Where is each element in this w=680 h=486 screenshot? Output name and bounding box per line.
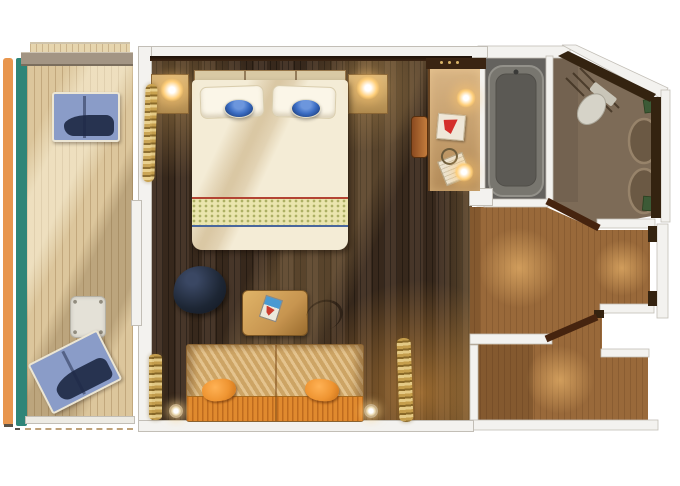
nightstand-lamp-left (160, 78, 184, 102)
tub-divider-wall (546, 56, 553, 204)
entry-outer-wall (657, 224, 668, 318)
red-logo-bag (436, 113, 466, 141)
sofa-center-seam (275, 345, 277, 421)
hallway-glow (526, 346, 594, 414)
bag-logo (442, 118, 457, 134)
bathroom-bottom-wall-right (597, 219, 655, 228)
bed-runner (192, 197, 348, 227)
bottle (456, 61, 459, 64)
curtain-bottom-right (397, 338, 414, 422)
vanity-lamp-bottom (454, 162, 474, 182)
bathroom-top-wall (478, 46, 570, 58)
bottle (440, 61, 443, 64)
entry-door-jamb-bottom (648, 291, 657, 306)
bathroom-bottom-wall-left (484, 199, 548, 207)
closet-left-wall (470, 345, 478, 423)
blue-bowl-left (224, 99, 254, 118)
vanity-chair (411, 116, 428, 158)
curtain-bottom-left (149, 354, 162, 420)
closet-shadow (478, 345, 533, 420)
booklet-logo (264, 306, 275, 317)
bathroom-right-inner-wall (651, 97, 661, 218)
entry-door-jamb-top (648, 226, 657, 242)
vanity-lamp-top (456, 88, 476, 108)
bathroom-right-outer-wall (661, 90, 670, 222)
vestibule-bottom-wall (600, 304, 654, 313)
balcony-door-wall (131, 200, 142, 326)
bathtub-basin (496, 74, 536, 186)
floor-plan (0, 0, 680, 486)
top-wall-trim (150, 56, 472, 61)
bottom-outer-wall-right (470, 420, 658, 430)
vanity-shelf (426, 58, 486, 69)
corridor-bottom-wall (470, 334, 552, 344)
hallway-glow (479, 228, 559, 308)
nightstand-lamp-right (356, 76, 380, 100)
hallway-shadow-left (470, 207, 480, 345)
bottle (448, 61, 451, 64)
nook-top-wall (601, 349, 649, 357)
wall-sconce-right (364, 404, 378, 418)
bathtub-faucet (514, 70, 519, 75)
wall-sconce-left (169, 404, 183, 418)
blue-bowl-right (291, 99, 321, 118)
vestibule-glow (594, 240, 650, 296)
